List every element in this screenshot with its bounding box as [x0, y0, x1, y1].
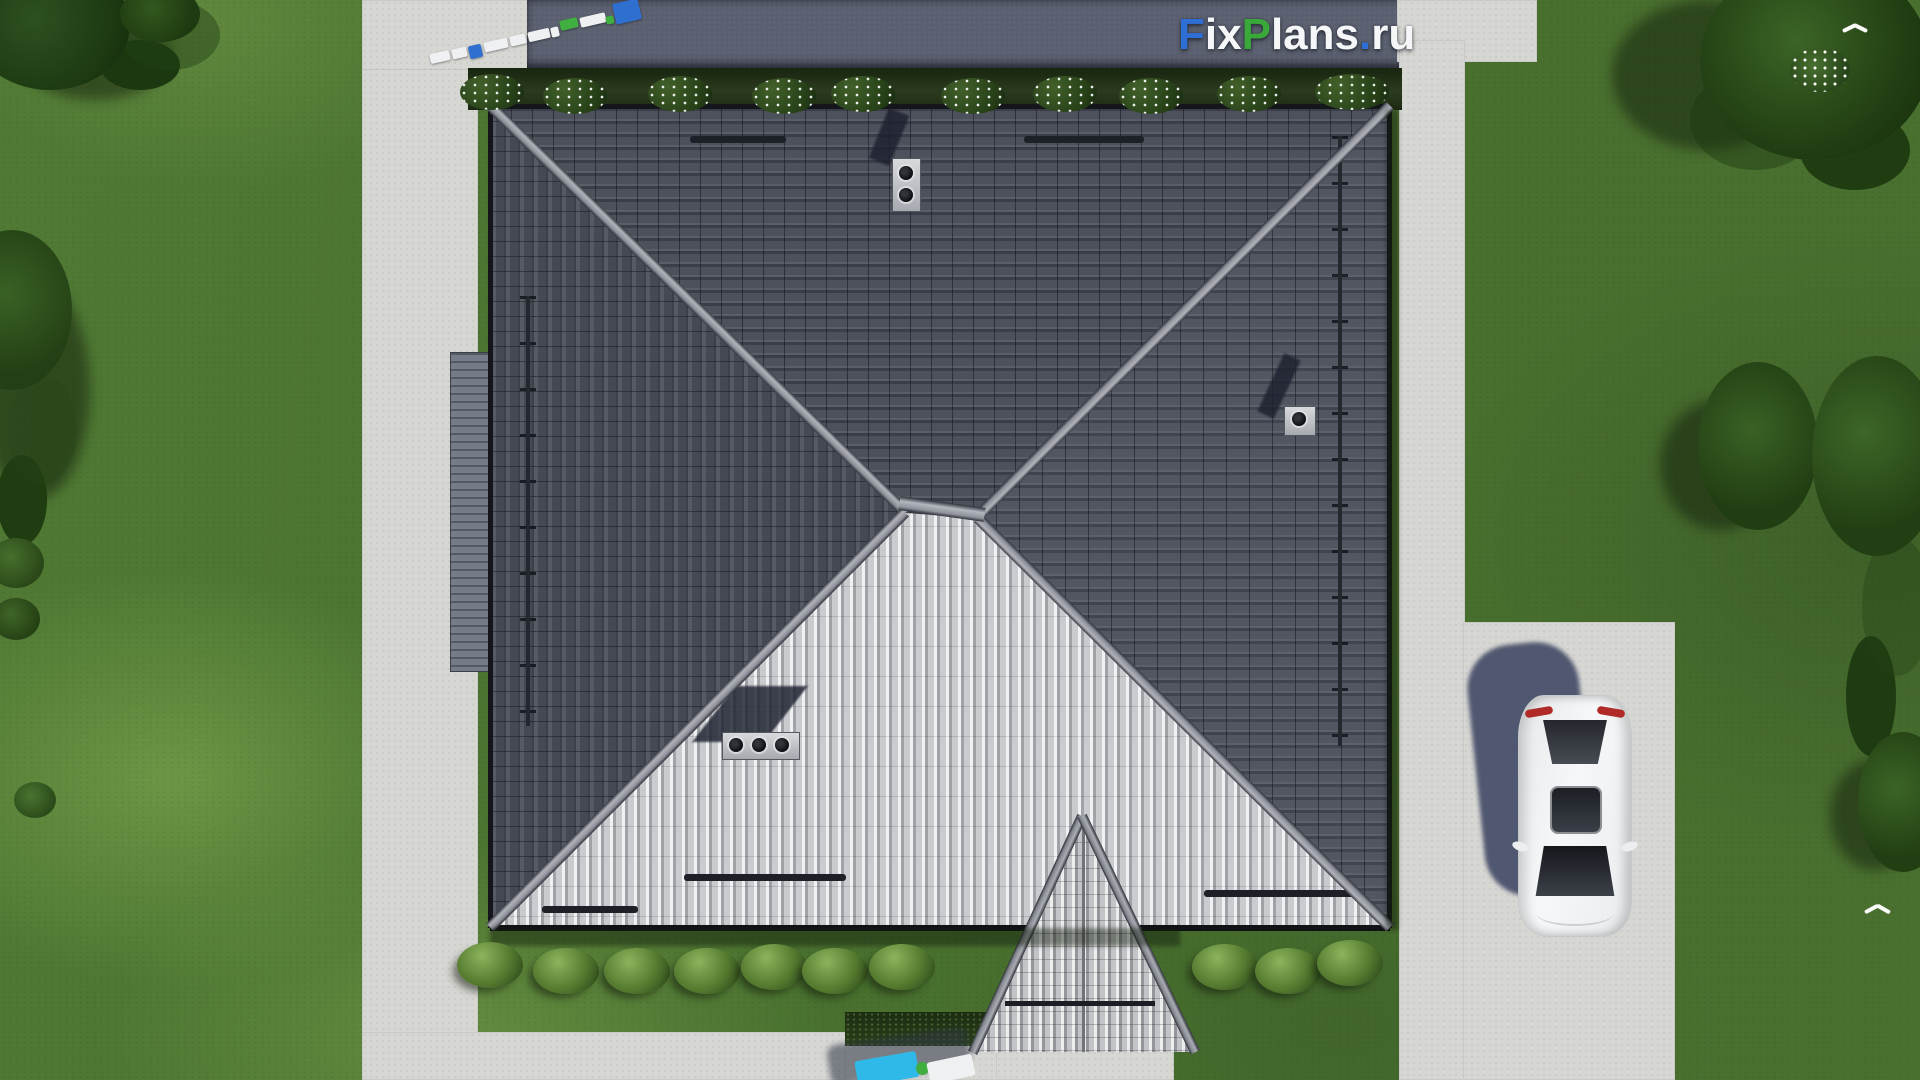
- chimney-flue-icon: [899, 166, 913, 180]
- car-hood-line: [1537, 902, 1613, 926]
- bush: [604, 948, 670, 994]
- chimney-flue-icon: [729, 738, 743, 752]
- bush: [741, 944, 807, 990]
- bush: [674, 948, 740, 994]
- house-roof: [490, 106, 1390, 928]
- car-sunroof: [1552, 788, 1600, 832]
- bush: [457, 942, 523, 988]
- logo-letter: ru: [1371, 10, 1415, 59]
- car-rear-window: [1537, 720, 1613, 764]
- bush: [1255, 948, 1321, 994]
- bird-icon: [1842, 22, 1868, 36]
- house-shadow-right: [1386, 110, 1398, 930]
- logo-letter: .: [1359, 10, 1371, 59]
- tree-right-1: [1698, 362, 1818, 530]
- car: [1518, 695, 1632, 935]
- watermark-logo: FixPlans.ru: [1178, 10, 1415, 60]
- flower-bush: [460, 74, 524, 110]
- roof-ladder-left: [526, 296, 530, 726]
- flower-bush: [1033, 76, 1097, 112]
- flower-bush: [941, 78, 1005, 114]
- bird-icon: [1864, 902, 1892, 918]
- flower-bush: [543, 78, 607, 114]
- bush: [533, 948, 599, 994]
- snow-guard-top-2: [1024, 136, 1144, 143]
- vent-flue-icon: [1292, 412, 1306, 426]
- path-right: [1399, 40, 1465, 1080]
- porch-eave-line: [1005, 1001, 1155, 1006]
- flower-bush: [648, 76, 712, 112]
- flower-bush: [831, 76, 895, 112]
- eave-edge-left: [488, 106, 493, 928]
- bush: [869, 944, 935, 990]
- logo-letter: F: [1178, 10, 1205, 59]
- chimney-flue-icon: [899, 188, 913, 202]
- taillight-icon: [1597, 706, 1626, 719]
- taillight-icon: [1525, 706, 1554, 719]
- logo-letter: ix: [1205, 10, 1242, 59]
- retaining-wall: [450, 352, 490, 672]
- chimney-flue-icon: [775, 738, 789, 752]
- house-shadow: [490, 928, 1180, 946]
- bush: [802, 948, 868, 994]
- snow-guard-top-1: [690, 136, 786, 143]
- snow-guard-bottom-2: [684, 874, 846, 881]
- roof-ladder-right: [1338, 136, 1342, 746]
- flower-bush: [1119, 78, 1183, 114]
- path-bottom: [362, 1032, 848, 1080]
- chimney-flue-icon: [752, 738, 766, 752]
- snow-guard-bottom-3: [1204, 890, 1354, 897]
- car-body: [1518, 695, 1632, 937]
- bush: [1192, 944, 1258, 990]
- flower-bush: [752, 78, 816, 114]
- snow-guard-bottom-1: [542, 906, 638, 913]
- logo-letter: lans: [1271, 10, 1359, 59]
- bush-left: [14, 782, 56, 818]
- car-windshield: [1534, 846, 1616, 896]
- bush: [1317, 940, 1383, 986]
- flower-bush: [1217, 76, 1281, 112]
- logo-letter: P: [1242, 10, 1271, 59]
- flower-bush: [1315, 74, 1389, 110]
- aerial-house-render: FixPlans.ru: [0, 0, 1920, 1080]
- flower-bush-right: [1790, 48, 1850, 92]
